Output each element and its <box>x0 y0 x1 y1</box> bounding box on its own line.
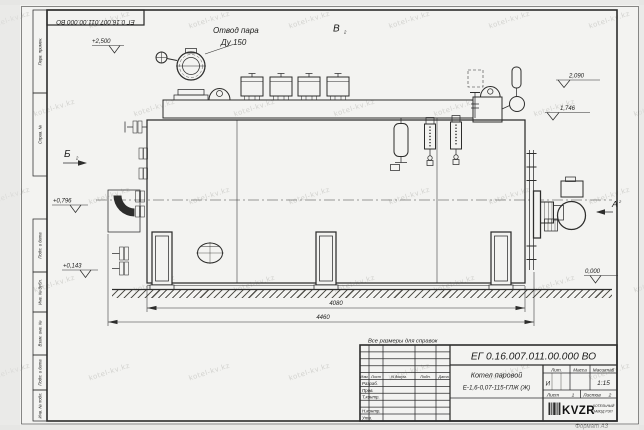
sheet-label: Лист <box>546 392 559 398</box>
col-izm: Изм. <box>360 374 368 379</box>
view-ref-b: 2 <box>75 156 79 161</box>
scale-header: Масштаб <box>593 368 615 373</box>
col-data: Дата <box>437 374 449 379</box>
steam-outlet-dn: Ду 150 <box>220 38 247 47</box>
level-gauges <box>391 116 462 171</box>
burner-assembly <box>527 150 586 270</box>
drawing-sheet: kotel-kv.kzkotel-kv.kzkotel-kv.kzkotel-k… <box>0 0 644 430</box>
view-ref-a: 2 <box>618 199 622 204</box>
view-ref-v: 2 <box>343 30 347 35</box>
view-label-b: Б <box>64 149 71 160</box>
lifting-lugs <box>209 86 500 100</box>
sheets-value: 2 <box>608 392 612 398</box>
elevation-ground: 0,000 <box>585 269 601 275</box>
frame-col-label: Инв. № дубл. <box>38 279 43 305</box>
elevation-top: 2,090 <box>568 74 585 80</box>
logo-caption-2: ЗАВОД РЭП <box>593 410 613 414</box>
product-model: Е-1,6-0,07-115-ГЛЖ (Ж) <box>463 385 530 392</box>
col-ndocum: N докум. <box>391 374 407 379</box>
page-margin-top <box>0 0 644 5</box>
logo-caption-1: КОТЕЛЬНЫЙ <box>593 404 615 408</box>
frame-col-label: Подп. и дата <box>38 359 43 386</box>
row-tkontr: Т.контр. <box>362 395 380 400</box>
lit-header: Лит. <box>550 368 562 373</box>
sheet-value: 1 <box>572 392 575 398</box>
doc-number: ЕГ 0.16.007.011.00.000 ВО <box>471 352 596 363</box>
page-margin-bottom <box>0 425 644 430</box>
frame-col-label: Взам. инв. № <box>38 320 43 346</box>
product-name: Котел паровой <box>471 371 523 380</box>
top-stamp-number: ЕГ 0.16.007.011.00.000 ВО <box>56 18 135 25</box>
annotations: Отвод пара Ду 150 Все размеры для справо… <box>213 26 609 430</box>
col-list: Лист <box>370 374 382 379</box>
top-fittings <box>468 67 525 118</box>
elevation-drum: 1,746 <box>560 106 576 112</box>
row-razrab: Разраб. <box>362 381 378 386</box>
page-margin-right <box>639 0 644 430</box>
manhole <box>196 242 224 264</box>
elevation-steam: +2,500 <box>92 39 111 45</box>
title-block-text: ЕГ 0.16.007.011.00.000 ВО Котел паровой … <box>360 352 615 421</box>
steam-outlet-label: Отвод пара <box>213 26 259 35</box>
sheets-label: Листов <box>582 392 601 398</box>
view-label-a: А <box>611 199 618 209</box>
dim-body-length: 4080 <box>329 301 343 307</box>
view-label-v: В <box>333 24 340 35</box>
col-podp: Подп. <box>420 374 430 379</box>
scale-value: 1:15 <box>597 380 610 387</box>
logo-kvzr: KVZR <box>562 405 595 417</box>
dim-total-length: 4460 <box>316 315 330 321</box>
frame-column-labels: Перв. примен. Справ. № Подп. и дата Инв.… <box>38 18 135 419</box>
page-margin-left <box>0 0 20 430</box>
steam-outlet-valve <box>156 45 234 101</box>
reference-note: Все размеры для справок <box>368 339 438 345</box>
elevation-mid: +0,796 <box>53 199 72 205</box>
left-fittings <box>108 121 148 275</box>
row-nkontr: Н.контр. <box>362 409 381 414</box>
frame-col-label: Инв. № подл. <box>38 393 43 419</box>
drawing-canvas: Перв. примен. Справ. № Подп. и дата Инв.… <box>0 0 644 430</box>
safety-valves <box>241 74 349 101</box>
frame-col-label: Справ. № <box>38 125 43 144</box>
row-prov: Пров. <box>362 388 374 393</box>
frame-col-label: Перв. примен. <box>38 38 43 66</box>
lit-value: И <box>546 381 551 388</box>
supports <box>150 232 513 290</box>
elevation-low: +0,143 <box>63 264 82 270</box>
frame-col-label: Подп. и дата <box>38 232 43 259</box>
row-utv: Утв. <box>362 415 372 420</box>
mass-header: Масса <box>573 368 587 373</box>
